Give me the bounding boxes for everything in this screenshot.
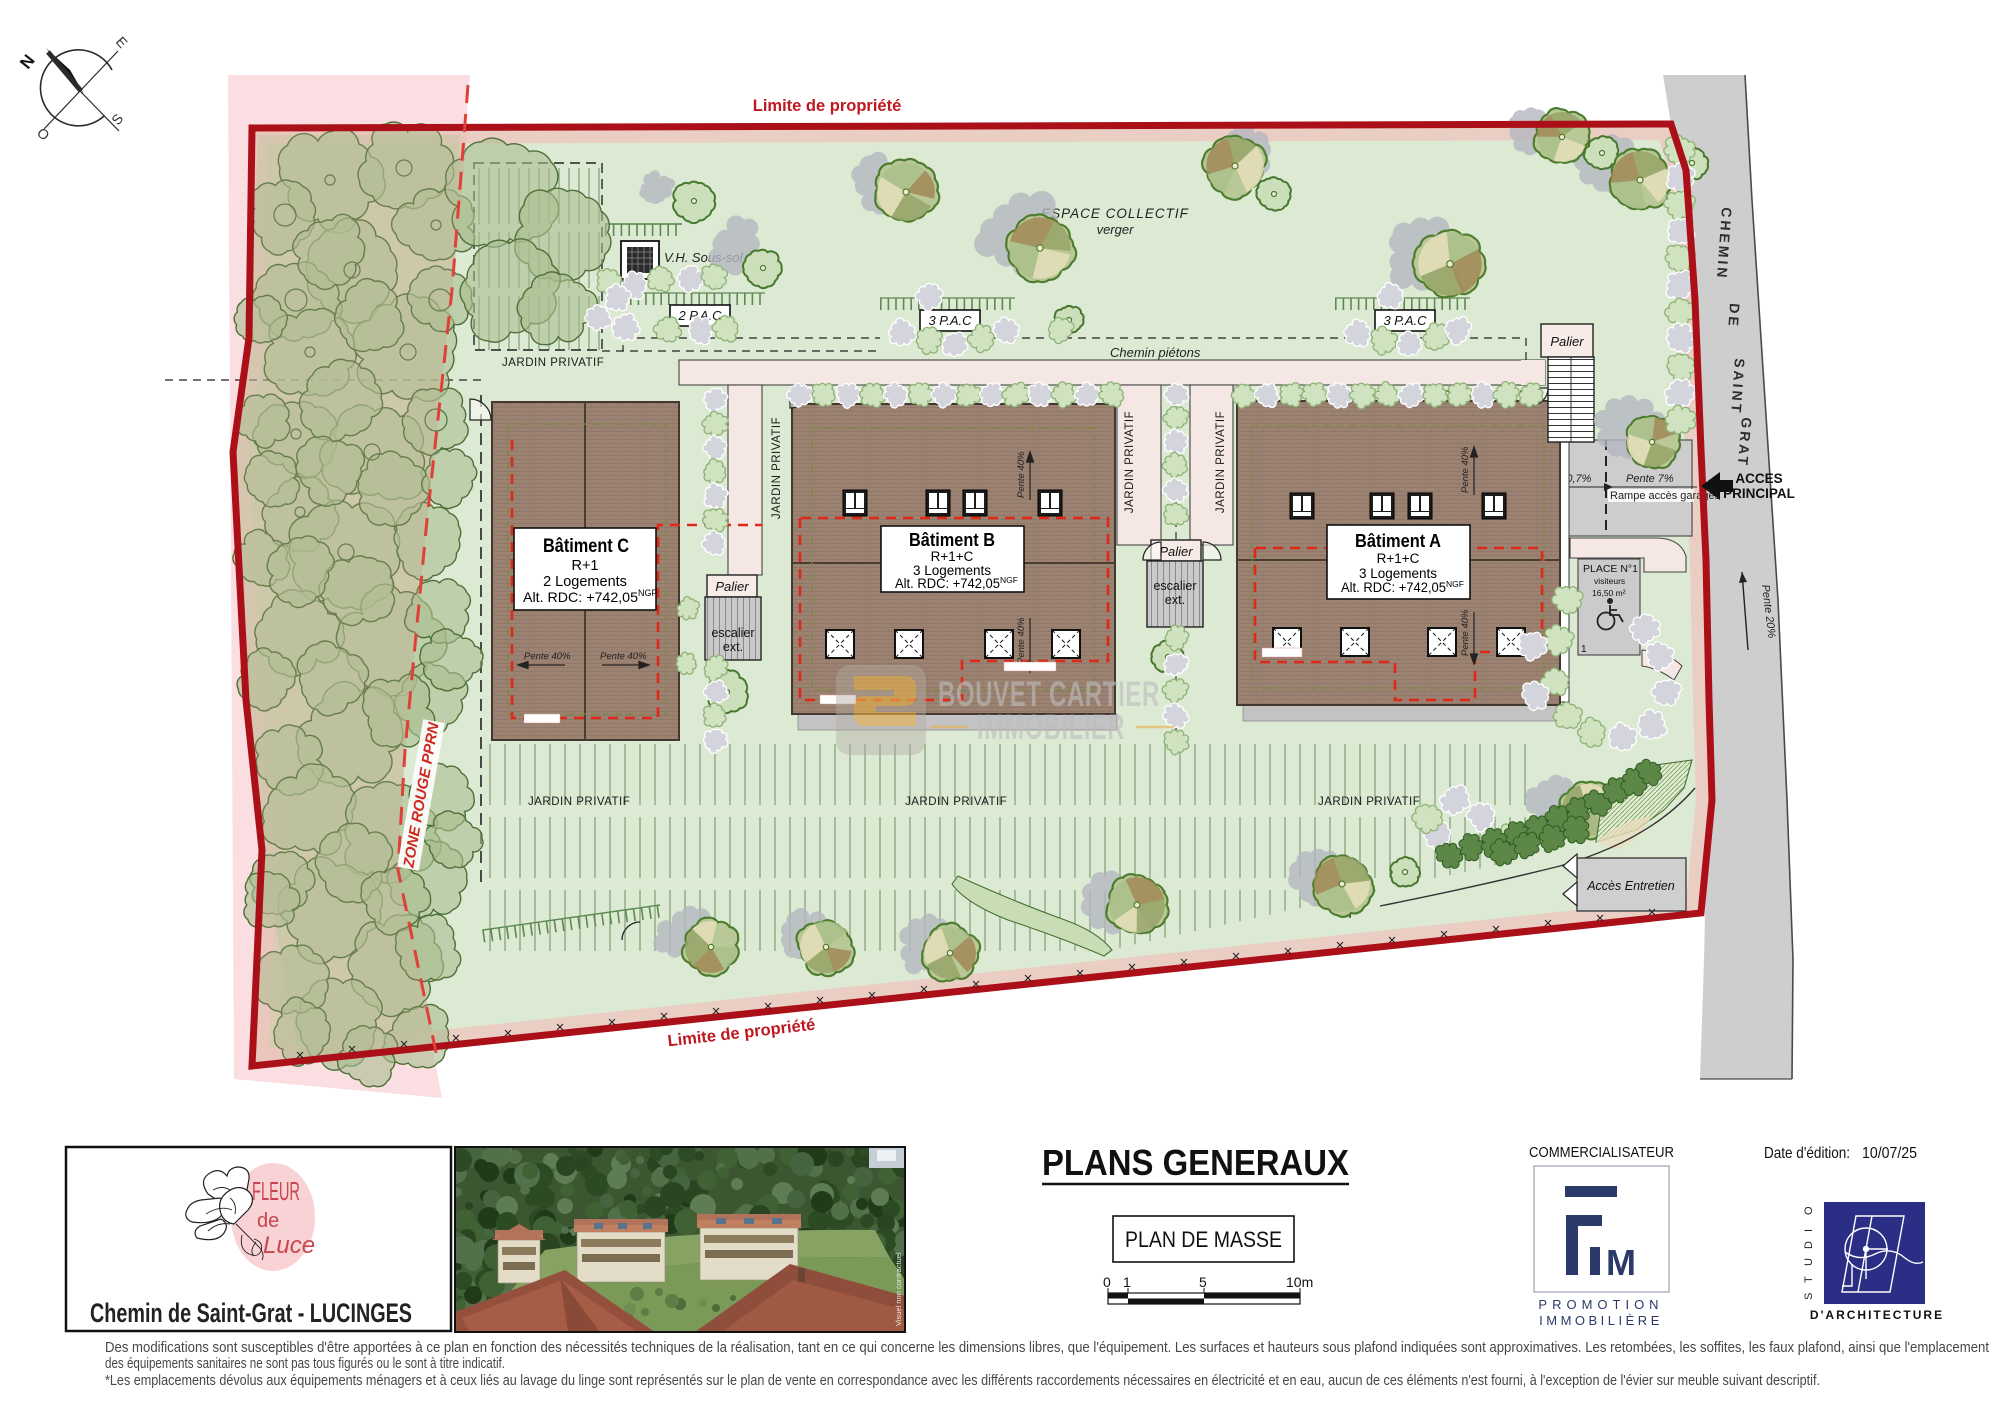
- svg-text:Alt. RDC: +742,05: Alt. RDC: +742,05: [1341, 580, 1446, 595]
- svg-text:JARDIN PRIVATIF: JARDIN PRIVATIF: [528, 796, 630, 808]
- svg-text:escalier: escalier: [1153, 579, 1196, 593]
- svg-text:Palier: Palier: [715, 579, 749, 594]
- svg-text:visiteurs: visiteurs: [1594, 576, 1625, 586]
- svg-text:0: 0: [1103, 1274, 1111, 1290]
- svg-text:Chemin piétons: Chemin piétons: [1110, 345, 1201, 360]
- svg-text:JARDIN PRIVATIF: JARDIN PRIVATIF: [905, 796, 1007, 808]
- svg-text:5: 5: [1199, 1274, 1207, 1290]
- svg-text:IMMOBILIÈRE: IMMOBILIÈRE: [1539, 1313, 1663, 1328]
- svg-text:ESPACE COLLECTIF: ESPACE COLLECTIF: [1041, 206, 1189, 221]
- svg-text:des équipements sanitaires ne: des équipements sanitaires ne sont pas t…: [105, 1355, 505, 1372]
- svg-text:Alt. RDC: +742,05: Alt. RDC: +742,05: [523, 589, 638, 605]
- svg-text:Luce: Luce: [263, 1232, 315, 1259]
- svg-text:Accès Entretien: Accès Entretien: [1586, 879, 1675, 893]
- svg-text:Pente 40%: Pente 40%: [600, 651, 647, 662]
- svg-text:IMMOBILIER: IMMOBILIER: [977, 708, 1125, 747]
- svg-text:de: de: [257, 1210, 279, 1232]
- svg-text:JARDIN PRIVATIF: JARDIN PRIVATIF: [1215, 411, 1227, 513]
- svg-text:D: D: [1803, 1241, 1815, 1249]
- svg-text:I: I: [1803, 1229, 1815, 1232]
- svg-text:3 P.A.C: 3 P.A.C: [1383, 313, 1427, 328]
- svg-text:Palier: Palier: [1159, 544, 1193, 559]
- svg-text:Palier: Palier: [1550, 334, 1584, 349]
- svg-text:JARDIN PRIVATIF: JARDIN PRIVATIF: [502, 357, 604, 369]
- svg-text:Des modifications sont suscept: Des modifications sont susceptibles d'êt…: [105, 1339, 1990, 1356]
- svg-text:COMMERCIALISATEUR: COMMERCIALISATEUR: [1529, 1144, 1674, 1161]
- svg-text:2 Logements: 2 Logements: [543, 574, 627, 590]
- svg-text:JARDIN PRIVATIF: JARDIN PRIVATIF: [771, 417, 783, 519]
- svg-text:PRINCIPAL: PRINCIPAL: [1723, 486, 1795, 501]
- svg-text:Pente 7%: Pente 7%: [1626, 473, 1674, 485]
- svg-text:Pente 40%: Pente 40%: [1460, 609, 1471, 656]
- svg-text:R+1: R+1: [571, 558, 598, 574]
- svg-text:Chemin de Saint-Grat - LUCINGE: Chemin de Saint-Grat - LUCINGES: [90, 1298, 412, 1328]
- svg-text:10m: 10m: [1286, 1274, 1313, 1290]
- svg-text:FLEUR: FLEUR: [252, 1176, 300, 1206]
- svg-text:R+1+C: R+1+C: [1377, 551, 1420, 566]
- svg-text:10/07/25: 10/07/25: [1862, 1145, 1917, 1162]
- svg-text:PLANS GENERAUX: PLANS GENERAUX: [1042, 1142, 1349, 1183]
- svg-text:NGF: NGF: [1446, 579, 1464, 589]
- svg-text:U: U: [1803, 1258, 1815, 1266]
- svg-text:1: 1: [1581, 644, 1587, 655]
- svg-text:M: M: [1606, 1242, 1636, 1283]
- svg-text:verger: verger: [1097, 222, 1135, 237]
- svg-text:Bâtiment C: Bâtiment C: [543, 536, 629, 557]
- svg-text:NGF: NGF: [1000, 575, 1018, 585]
- svg-text:Bâtiment A: Bâtiment A: [1355, 531, 1441, 551]
- svg-text:Visuel non contractuel: Visuel non contractuel: [894, 1252, 903, 1326]
- svg-text:JARDIN PRIVATIF: JARDIN PRIVATIF: [1318, 796, 1420, 808]
- svg-text:16,50 m²: 16,50 m²: [1592, 588, 1626, 598]
- svg-text:DE: DE: [1725, 303, 1743, 330]
- svg-text:ext.: ext.: [1165, 593, 1185, 607]
- svg-text:Pente 40%: Pente 40%: [1016, 617, 1027, 664]
- svg-text:PLAN DE MASSE: PLAN DE MASSE: [1125, 1227, 1282, 1252]
- svg-text:Alt. RDC: +742,05: Alt. RDC: +742,05: [895, 576, 1000, 591]
- svg-text:Pente 40%: Pente 40%: [524, 651, 571, 662]
- svg-text:3 P.A.C: 3 P.A.C: [928, 313, 972, 328]
- svg-text:PLACE N°1: PLACE N°1: [1583, 563, 1638, 575]
- svg-text:O: O: [1803, 1206, 1815, 1215]
- svg-text:escalier: escalier: [711, 626, 754, 640]
- svg-text:JARDIN PRIVATIF: JARDIN PRIVATIF: [1124, 411, 1136, 513]
- svg-text:D'ARCHITECTURE: D'ARCHITECTURE: [1810, 1308, 1944, 1322]
- svg-text:1: 1: [1123, 1274, 1131, 1290]
- svg-text:R+1+C: R+1+C: [931, 549, 974, 564]
- svg-text:NGF: NGF: [638, 588, 658, 598]
- svg-text:*Les emplacements dévolus aux: *Les emplacements dévolus aux équipement…: [105, 1372, 1820, 1389]
- svg-text:Bâtiment B: Bâtiment B: [909, 530, 995, 550]
- svg-text:T: T: [1803, 1276, 1815, 1283]
- svg-text:S: S: [1803, 1293, 1815, 1300]
- svg-text:Pente 40%: Pente 40%: [1460, 446, 1471, 493]
- svg-text:Limite de propriété: Limite de propriété: [753, 97, 902, 115]
- svg-text:ACCES: ACCES: [1735, 471, 1782, 486]
- svg-text:3 Logements: 3 Logements: [1359, 566, 1437, 581]
- svg-text:Pente 40%: Pente 40%: [1016, 451, 1027, 498]
- svg-text:ext.: ext.: [723, 640, 743, 654]
- svg-text:Date d'édition:: Date d'édition:: [1764, 1145, 1850, 1162]
- svg-text:PROMOTION: PROMOTION: [1538, 1297, 1663, 1312]
